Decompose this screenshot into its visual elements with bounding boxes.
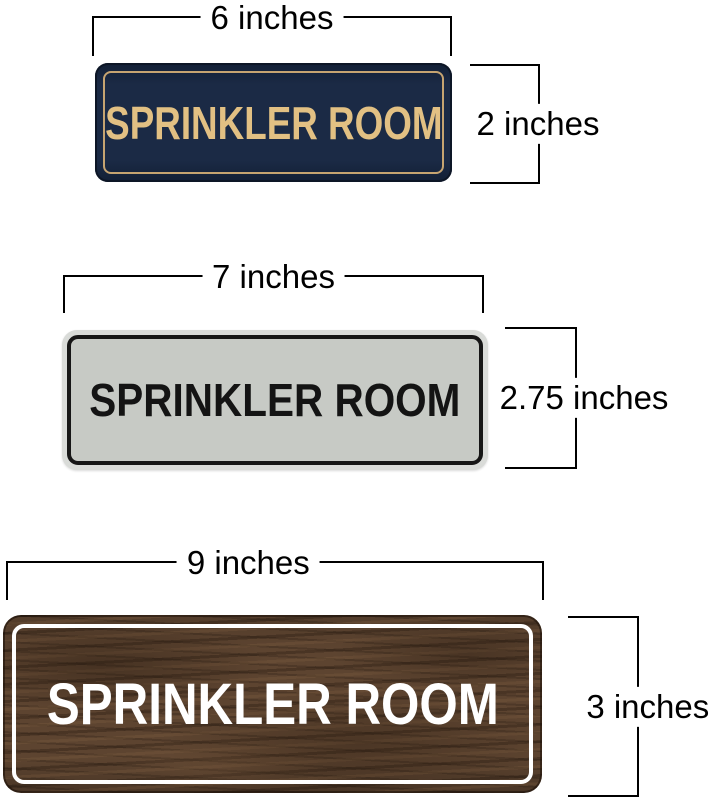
height-dimension-bracket-silver: 2.75 inches — [505, 327, 577, 469]
product-dimension-diagram: 6 inches SPRINKLER ROOM 2 inches 7 inche… — [0, 0, 722, 805]
sprinkler-sign-navy: SPRINKLER ROOM — [95, 63, 452, 182]
sprinkler-sign-walnut: SPRINKLER ROOM — [3, 615, 542, 793]
width-dimension-bracket-silver: 7 inches — [63, 275, 484, 313]
height-dimension-bracket-navy: 2 inches — [470, 64, 540, 184]
sign-text-walnut: SPRINKLER ROOM — [47, 671, 499, 738]
width-dimension-label-walnut: 9 inches — [177, 545, 320, 581]
sign-text-navy: SPRINKLER ROOM — [105, 96, 442, 150]
sign-frame-silver: SPRINKLER ROOM — [67, 335, 483, 465]
height-dimension-label-navy: 2 inches — [471, 104, 606, 144]
width-dimension-bracket-walnut: 9 inches — [6, 561, 544, 600]
sprinkler-sign-silver: SPRINKLER ROOM — [62, 330, 488, 470]
height-dimension-bracket-walnut: 3 inches — [568, 616, 639, 797]
height-dimension-label-walnut: 3 inches — [580, 686, 715, 726]
width-dimension-bracket-navy: 6 inches — [92, 16, 452, 56]
width-dimension-label-silver: 7 inches — [202, 259, 345, 295]
sign-frame-navy: SPRINKLER ROOM — [103, 71, 444, 174]
height-dimension-label-silver: 2.75 inches — [494, 378, 675, 418]
sign-text-silver: SPRINKLER ROOM — [89, 373, 460, 427]
sign-frame-walnut: SPRINKLER ROOM — [12, 624, 533, 784]
width-dimension-label-navy: 6 inches — [201, 0, 344, 36]
